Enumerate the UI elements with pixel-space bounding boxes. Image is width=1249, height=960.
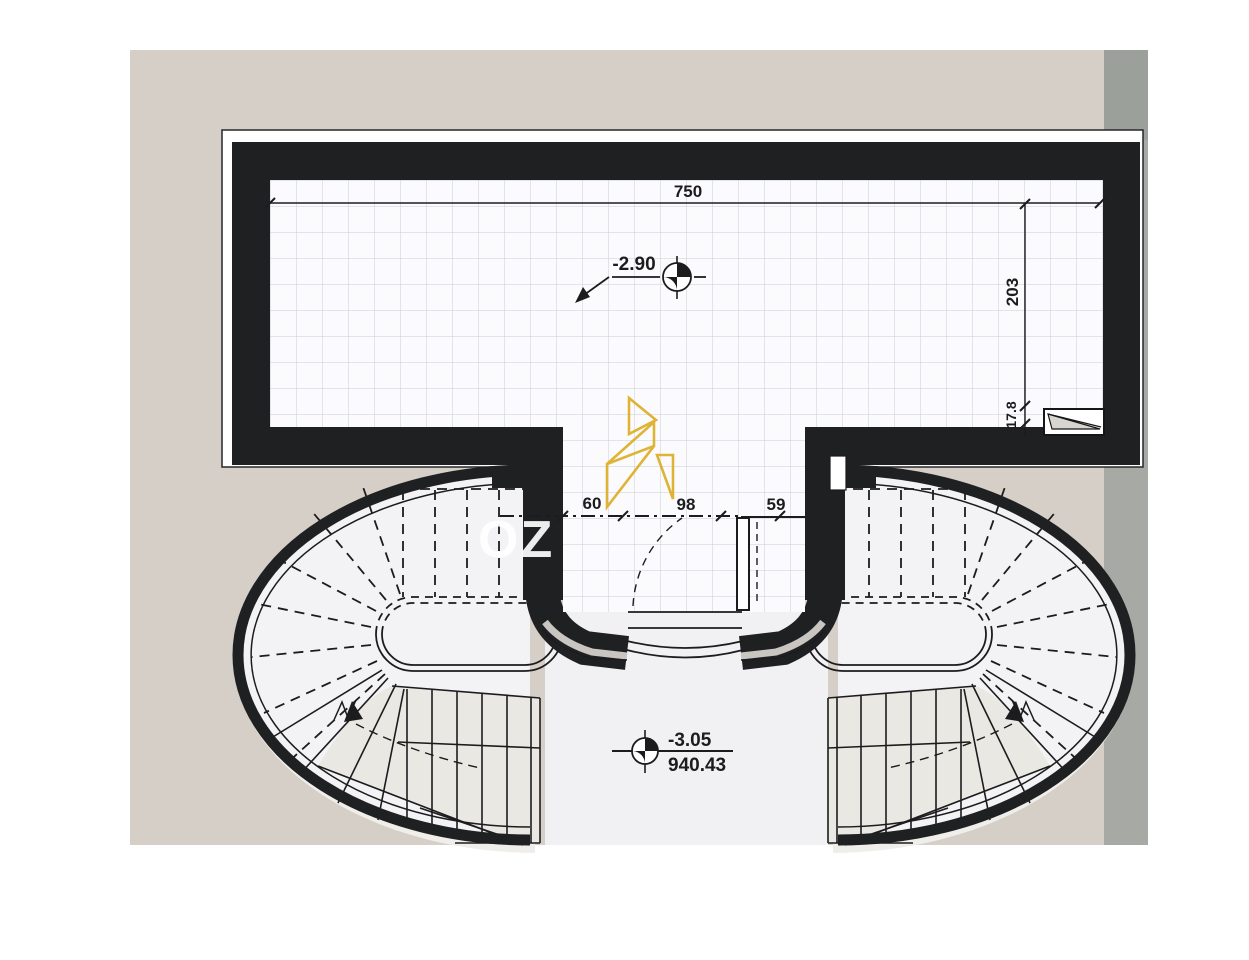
dim-label-17-8: 17.8: [1003, 401, 1019, 428]
room-tile-grid: [270, 180, 1103, 427]
scan-strip-dark: [1104, 50, 1148, 140]
level-label-lower: -3.05: [668, 730, 712, 751]
scanned-plan-page: 750 203 17.8 60 98 59 -2.90: [0, 0, 1249, 960]
wall-top: [232, 142, 1140, 180]
vestibule-wall-right: [805, 427, 845, 600]
wall-notch: [830, 456, 846, 490]
door-leaf: [737, 518, 749, 610]
floor-plan-svg: 750 203 17.8 60 98 59 -2.90: [0, 0, 1249, 960]
dim-label-60: 60: [583, 494, 602, 513]
watermark-text: OZ: [478, 511, 554, 569]
dim-label-59: 59: [767, 495, 786, 514]
elevation-label-lower: 940.43: [668, 755, 726, 776]
wall-left: [232, 142, 270, 465]
vestibule-tile-grid: [563, 427, 805, 612]
dim-label-203: 203: [1003, 278, 1022, 306]
wall-bottom-left: [232, 427, 563, 465]
wall-niche: [1044, 409, 1104, 435]
dim-label-98: 98: [677, 495, 696, 514]
level-label-upper: -2.90: [612, 254, 655, 275]
dim-label-750: 750: [674, 182, 702, 201]
wall-right: [1103, 142, 1140, 465]
